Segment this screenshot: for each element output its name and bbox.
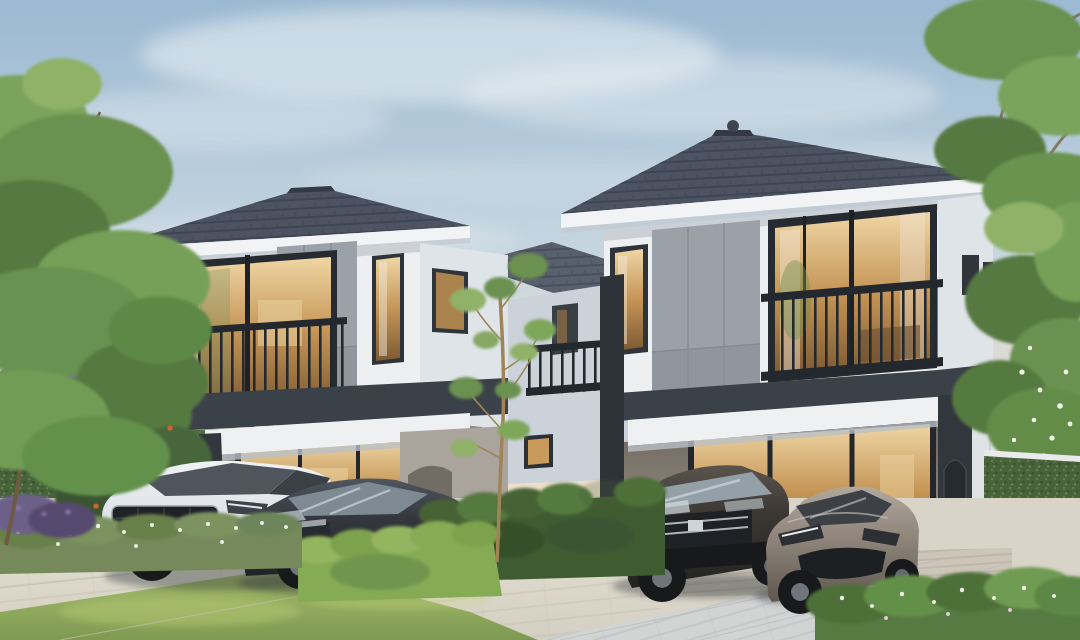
architectural-render <box>0 0 1080 640</box>
roof-finial-ball <box>727 120 739 132</box>
tall-window-curtain <box>379 262 387 356</box>
h-badge <box>688 520 703 531</box>
cloud <box>460 57 940 133</box>
wheel-rim <box>791 583 809 601</box>
wing-door-glass <box>557 310 567 348</box>
wing-small-window-glass <box>528 438 549 465</box>
scene-canvas <box>0 0 1080 640</box>
